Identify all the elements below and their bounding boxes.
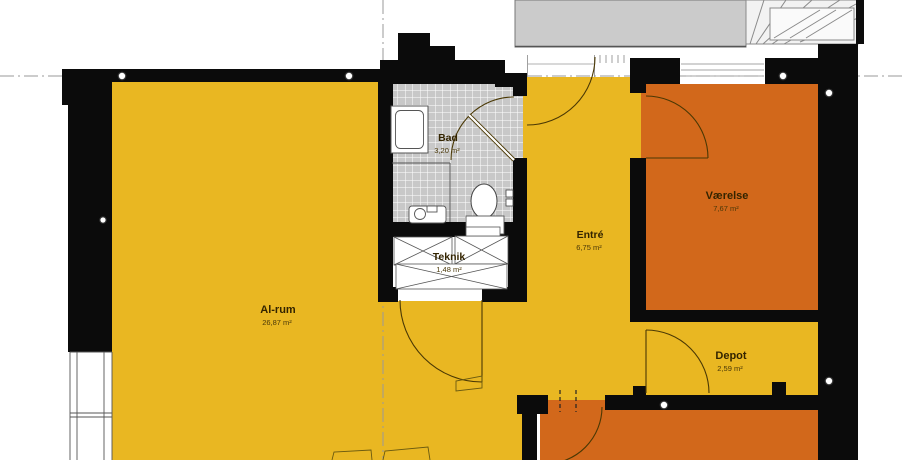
teknik-door-threshold: [398, 288, 482, 301]
toilet-bowl: [471, 184, 497, 218]
wall-depot-bump: [772, 382, 786, 396]
wall-bad-east-lower: [513, 158, 527, 222]
west-window: [70, 352, 112, 460]
wall-left: [68, 105, 112, 352]
teknik-niche: [466, 227, 500, 236]
wall-bottom-room-column: [522, 414, 537, 460]
label-bad-area: 3,20 m²: [434, 146, 460, 155]
wall-teknik-south-left: [378, 287, 398, 302]
west-window-opening: [70, 352, 112, 460]
floor-plan: Al-rum 26,87 m² Bad 3,20 m² Teknik 1,48 …: [0, 0, 905, 460]
marker-circle-4: [825, 89, 833, 97]
label-vaerelse-area: 7,67 m²: [713, 204, 739, 213]
room-al-rum: [112, 82, 380, 460]
sink-tap: [427, 206, 437, 212]
label-entre-name: Entré: [577, 229, 604, 241]
marker-circle-6: [660, 401, 668, 409]
wall-bad-door-top-stub: [513, 82, 527, 96]
label-depot-name: Depot: [715, 350, 747, 362]
wall-bad-top: [380, 60, 505, 84]
label-vaerelse-name: Værelse: [706, 190, 749, 202]
wall-vaerelse-door-top-stub: [630, 84, 646, 93]
wall-bottom-room-cap: [517, 395, 548, 414]
label-bad-name: Bad: [438, 132, 458, 144]
marker-circle-5: [825, 377, 833, 385]
wall-vaerelse-depot: [630, 310, 820, 322]
marker-circle-3: [779, 72, 787, 80]
room-al-rum-south: [380, 300, 527, 460]
stairs-landing: [770, 8, 854, 40]
wall-top-mid-right: [630, 58, 680, 84]
label-teknik-area: 1,48 m²: [436, 265, 462, 274]
wall-depot-door-stub: [633, 386, 646, 397]
label-al-rum-name: Al-rum: [260, 304, 296, 316]
marker-circle-1: [118, 72, 126, 80]
wall-entre-vaerelse: [630, 158, 646, 310]
wall-stairs-stub: [856, 0, 864, 44]
entrance-threshold: [527, 55, 630, 77]
label-teknik-name: Teknik: [433, 251, 466, 263]
label-depot-area: 2,59 m²: [717, 364, 743, 373]
toilet-cistern-a: [506, 190, 513, 197]
vaerelse-top-window: [680, 58, 765, 84]
deck-slab: [515, 0, 746, 47]
stairs: [746, 0, 858, 44]
wall-left-top-step: [62, 69, 112, 105]
toilet-cistern-b: [506, 199, 513, 206]
label-al-rum-area: 26,87 m²: [262, 318, 292, 327]
marker-circle-2: [345, 72, 353, 80]
wall-depot-south: [605, 395, 820, 410]
access-deck: [515, 0, 858, 47]
marker-circle-7: [100, 217, 106, 223]
wall-right-exterior: [818, 44, 858, 460]
wall-bad-teknik-divider: [392, 222, 527, 237]
wall-top-bump-b: [398, 46, 455, 60]
label-entre-area: 6,75 m²: [576, 243, 602, 252]
